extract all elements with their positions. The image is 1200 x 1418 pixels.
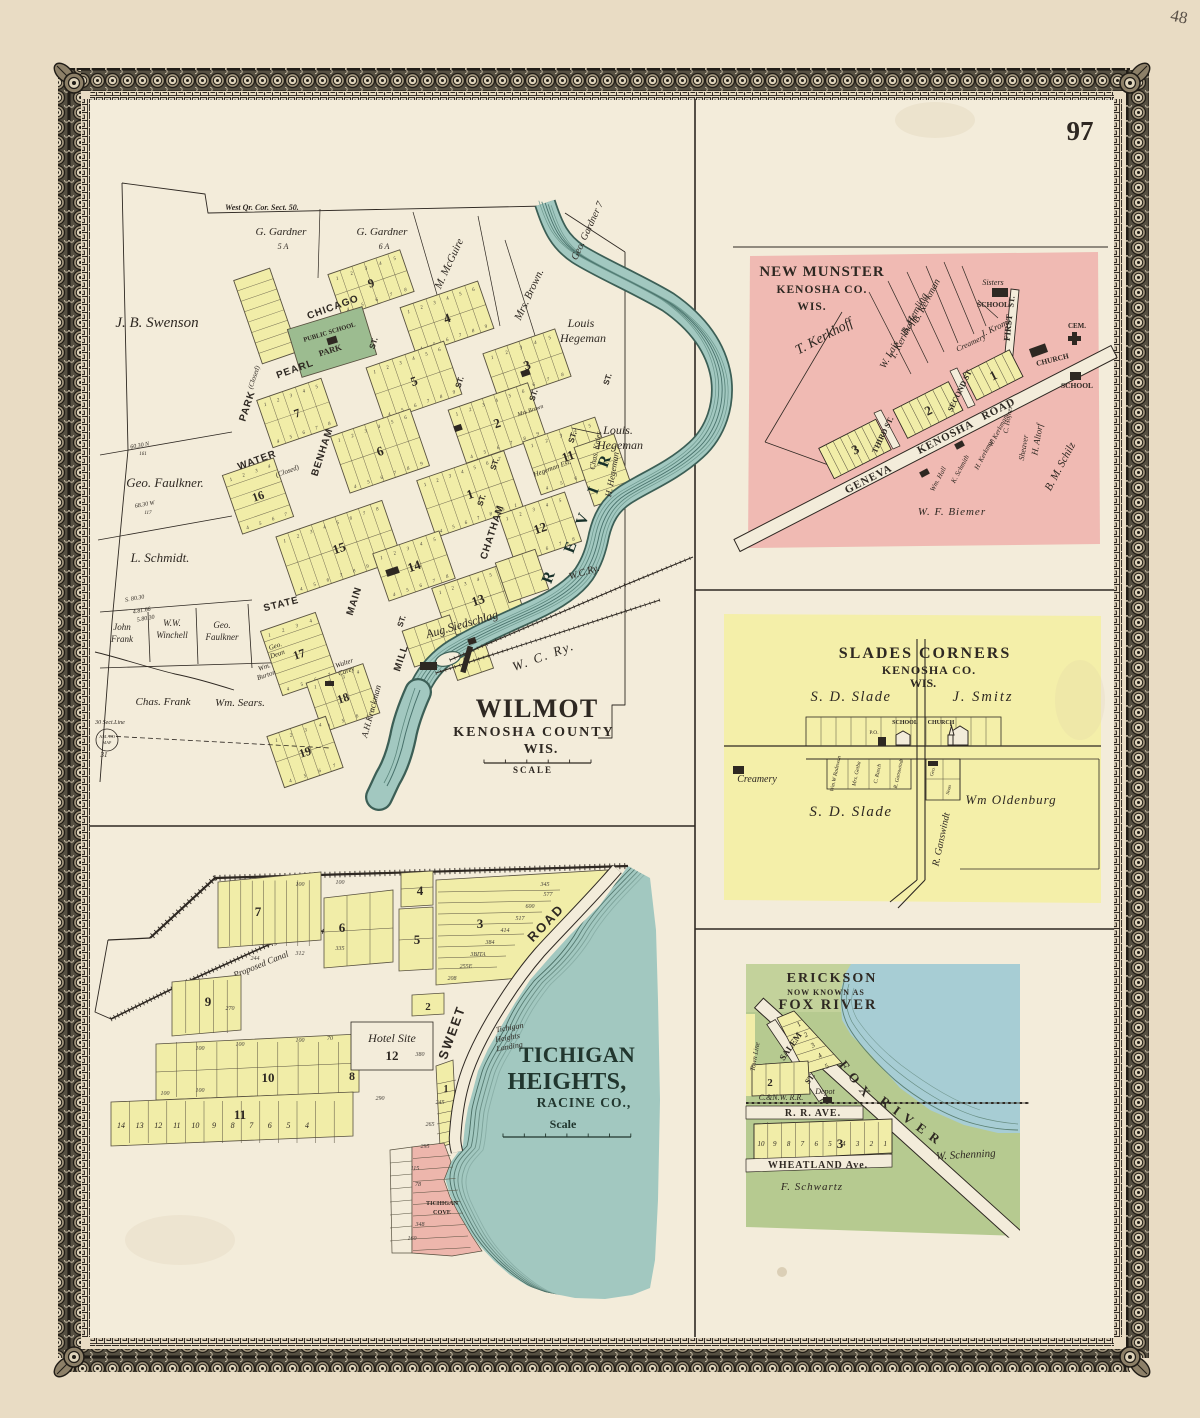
svg-text:335: 335 — [335, 946, 345, 952]
svg-text:1: 1 — [883, 1140, 887, 1148]
svg-text:312: 312 — [295, 951, 305, 957]
svg-text:CEM.: CEM. — [1068, 322, 1086, 330]
svg-text:9: 9 — [212, 1121, 216, 1130]
svg-text:KENOSHA CO.: KENOSHA CO. — [777, 284, 868, 296]
svg-text:255E: 255E — [460, 964, 473, 970]
svg-text:5 A: 5 A — [278, 242, 289, 251]
svg-text:ASL CO: ASL CO — [99, 734, 115, 739]
svg-text:78: 78 — [415, 1182, 421, 1188]
svg-text:8: 8 — [349, 1069, 355, 1083]
svg-text:348: 348 — [415, 1221, 425, 1228]
svg-text:Louis: Louis — [567, 316, 595, 330]
svg-text:13: 13 — [136, 1121, 144, 1130]
svg-text:Faulkner: Faulkner — [205, 632, 239, 642]
svg-text:100: 100 — [236, 1042, 245, 1048]
svg-text:5: 5 — [828, 1140, 832, 1148]
svg-text:9: 9 — [773, 1140, 777, 1148]
svg-text:Frank: Frank — [110, 634, 134, 644]
svg-text:270: 270 — [226, 1006, 235, 1012]
svg-text:6: 6 — [268, 1121, 272, 1130]
svg-text:CHURCH: CHURCH — [928, 720, 955, 726]
svg-text:384: 384 — [485, 939, 495, 946]
svg-text:30 Sect.Line: 30 Sect.Line — [94, 720, 125, 726]
svg-text:117: 117 — [144, 511, 152, 516]
svg-text:COVE: COVE — [433, 1209, 451, 1216]
svg-text:600: 600 — [526, 904, 535, 910]
svg-text:3: 3 — [855, 1140, 860, 1148]
svg-text:W. F. Biemer: W. F. Biemer — [918, 506, 986, 518]
svg-text:97: 97 — [1067, 116, 1094, 146]
svg-text:14: 14 — [117, 1121, 125, 1130]
svg-text:2: 2 — [425, 1001, 431, 1013]
svg-text:6 A: 6 A — [379, 242, 390, 251]
svg-text:10: 10 — [262, 1070, 275, 1085]
svg-text:J. Smitz: J. Smitz — [952, 689, 1013, 705]
svg-text:P.O.: P.O. — [869, 730, 879, 736]
svg-text:517: 517 — [516, 916, 526, 922]
svg-text:G. Gardner: G. Gardner — [256, 226, 308, 238]
svg-text:WIS.: WIS. — [797, 301, 826, 313]
svg-text:100: 100 — [161, 1091, 170, 1097]
svg-text:R. R. AVE.: R. R. AVE. — [785, 1108, 841, 1119]
svg-text:160: 160 — [408, 1236, 417, 1242]
svg-text:295: 295 — [421, 1144, 430, 1150]
svg-text:100: 100 — [296, 1038, 305, 1044]
svg-text:2: 2 — [767, 1077, 773, 1089]
svg-text:Hotel Site: Hotel Site — [367, 1031, 416, 1045]
svg-text:KENOSHA CO.: KENOSHA CO. — [882, 663, 976, 677]
svg-text:F. Schwartz: F. Schwartz — [780, 1181, 843, 1193]
svg-text:4: 4 — [417, 883, 424, 898]
svg-text:4: 4 — [305, 1121, 309, 1130]
svg-text:7: 7 — [801, 1140, 805, 1148]
svg-text:MAP: MAP — [103, 740, 112, 745]
svg-text:10: 10 — [191, 1121, 199, 1130]
svg-text:115: 115 — [411, 1166, 420, 1172]
svg-text:6: 6 — [339, 920, 346, 935]
svg-text:577: 577 — [544, 892, 554, 898]
svg-text:FOX RIVER: FOX RIVER — [779, 997, 878, 1013]
svg-text:TICHIGAN: TICHIGAN — [426, 1200, 459, 1207]
svg-text:Hegeman: Hegeman — [596, 438, 643, 452]
svg-text:100: 100 — [296, 882, 305, 888]
svg-text:100: 100 — [196, 1088, 205, 1094]
svg-text:West Qr. Cor. Sect. 50.: West Qr. Cor. Sect. 50. — [225, 203, 299, 212]
svg-text:414: 414 — [501, 927, 510, 934]
svg-text:Wm Oldenburg: Wm Oldenburg — [965, 792, 1056, 807]
svg-text:31: 31 — [100, 751, 108, 759]
svg-text:HEIGHTS,: HEIGHTS, — [507, 1069, 626, 1095]
svg-text:3BITA: 3BITA — [469, 952, 486, 958]
svg-text:5: 5 — [286, 1121, 290, 1130]
svg-text:TICHIGAN: TICHIGAN — [519, 1042, 635, 1067]
svg-text:10: 10 — [758, 1140, 766, 1148]
svg-text:12: 12 — [154, 1121, 162, 1130]
svg-text:11: 11 — [173, 1121, 180, 1130]
svg-text:Louis.: Louis. — [602, 423, 633, 437]
svg-text:SCHOOL: SCHOOL — [1061, 381, 1093, 390]
svg-text:L. Schmidt.: L. Schmidt. — [130, 550, 190, 565]
svg-text:Scale: Scale — [550, 1117, 577, 1131]
svg-text:Winchell: Winchell — [156, 630, 188, 640]
svg-text:Chas. Frank: Chas. Frank — [136, 696, 192, 708]
svg-text:3: 3 — [477, 916, 484, 931]
svg-text:5: 5 — [414, 932, 421, 947]
svg-text:S. D. Slade: S. D. Slade — [809, 804, 892, 820]
svg-text:WIS.: WIS. — [910, 676, 936, 690]
svg-text:8: 8 — [231, 1121, 235, 1130]
svg-text:8: 8 — [787, 1140, 791, 1148]
svg-text:John: John — [113, 622, 131, 632]
svg-text:Sisters: Sisters — [982, 278, 1003, 287]
svg-text:SCHOOL: SCHOOL — [892, 720, 918, 726]
svg-text:W.W.: W.W. — [163, 618, 181, 628]
svg-text:SCALE: SCALE — [513, 765, 553, 775]
svg-text:3: 3 — [837, 1136, 844, 1151]
svg-text:ERICKSON: ERICKSON — [787, 971, 878, 986]
svg-text:Creamery: Creamery — [737, 774, 777, 785]
svg-text:RACINE CO.,: RACINE CO., — [537, 1095, 632, 1110]
svg-text:100: 100 — [196, 1046, 205, 1052]
svg-text:WIS.: WIS. — [524, 742, 559, 757]
svg-text:Geo.: Geo. — [213, 620, 230, 630]
svg-text:380: 380 — [415, 1052, 425, 1058]
svg-text:C.&N.W. R.R.: C.&N.W. R.R. — [759, 1093, 804, 1102]
svg-text:KENOSHA COUNTY: KENOSHA COUNTY — [453, 725, 614, 740]
svg-text:290: 290 — [376, 1096, 385, 1102]
svg-text:345: 345 — [540, 881, 550, 888]
svg-text:Geo. Faulkner.: Geo. Faulkner. — [126, 475, 204, 490]
svg-text:70: 70 — [327, 1036, 333, 1042]
svg-text:ST.: ST. — [1006, 296, 1016, 308]
svg-text:244: 244 — [251, 955, 260, 962]
svg-text:12: 12 — [386, 1048, 399, 1063]
svg-text:6: 6 — [814, 1140, 818, 1148]
svg-text:7: 7 — [255, 904, 262, 919]
svg-text:G. Gardner: G. Gardner — [357, 226, 409, 238]
svg-text:1: 1 — [444, 1084, 449, 1095]
svg-text:Depot: Depot — [814, 1087, 835, 1096]
svg-text:Hegeman: Hegeman — [559, 331, 606, 345]
svg-text:Wm. Sears.: Wm. Sears. — [215, 697, 265, 709]
svg-text:245: 245 — [436, 1099, 445, 1106]
svg-text:SCHOOL: SCHOOL — [977, 300, 1009, 309]
svg-text:100: 100 — [336, 880, 345, 886]
svg-text:9: 9 — [205, 994, 212, 1009]
svg-text:208: 208 — [448, 976, 457, 982]
svg-text:265: 265 — [426, 1122, 435, 1128]
svg-text:161: 161 — [139, 452, 147, 457]
svg-text:S. D. Slade: S. D. Slade — [811, 689, 892, 705]
svg-text:WILMOT: WILMOT — [476, 694, 599, 723]
svg-text:2: 2 — [870, 1140, 874, 1148]
svg-text:WHEATLAND Ave.: WHEATLAND Ave. — [768, 1160, 868, 1171]
svg-text:NOW KNOWN AS: NOW KNOWN AS — [787, 988, 865, 997]
svg-text:11: 11 — [234, 1107, 246, 1122]
svg-text:J. B. Swenson: J. B. Swenson — [115, 315, 198, 331]
svg-text:NEW MUNSTER: NEW MUNSTER — [759, 264, 884, 280]
